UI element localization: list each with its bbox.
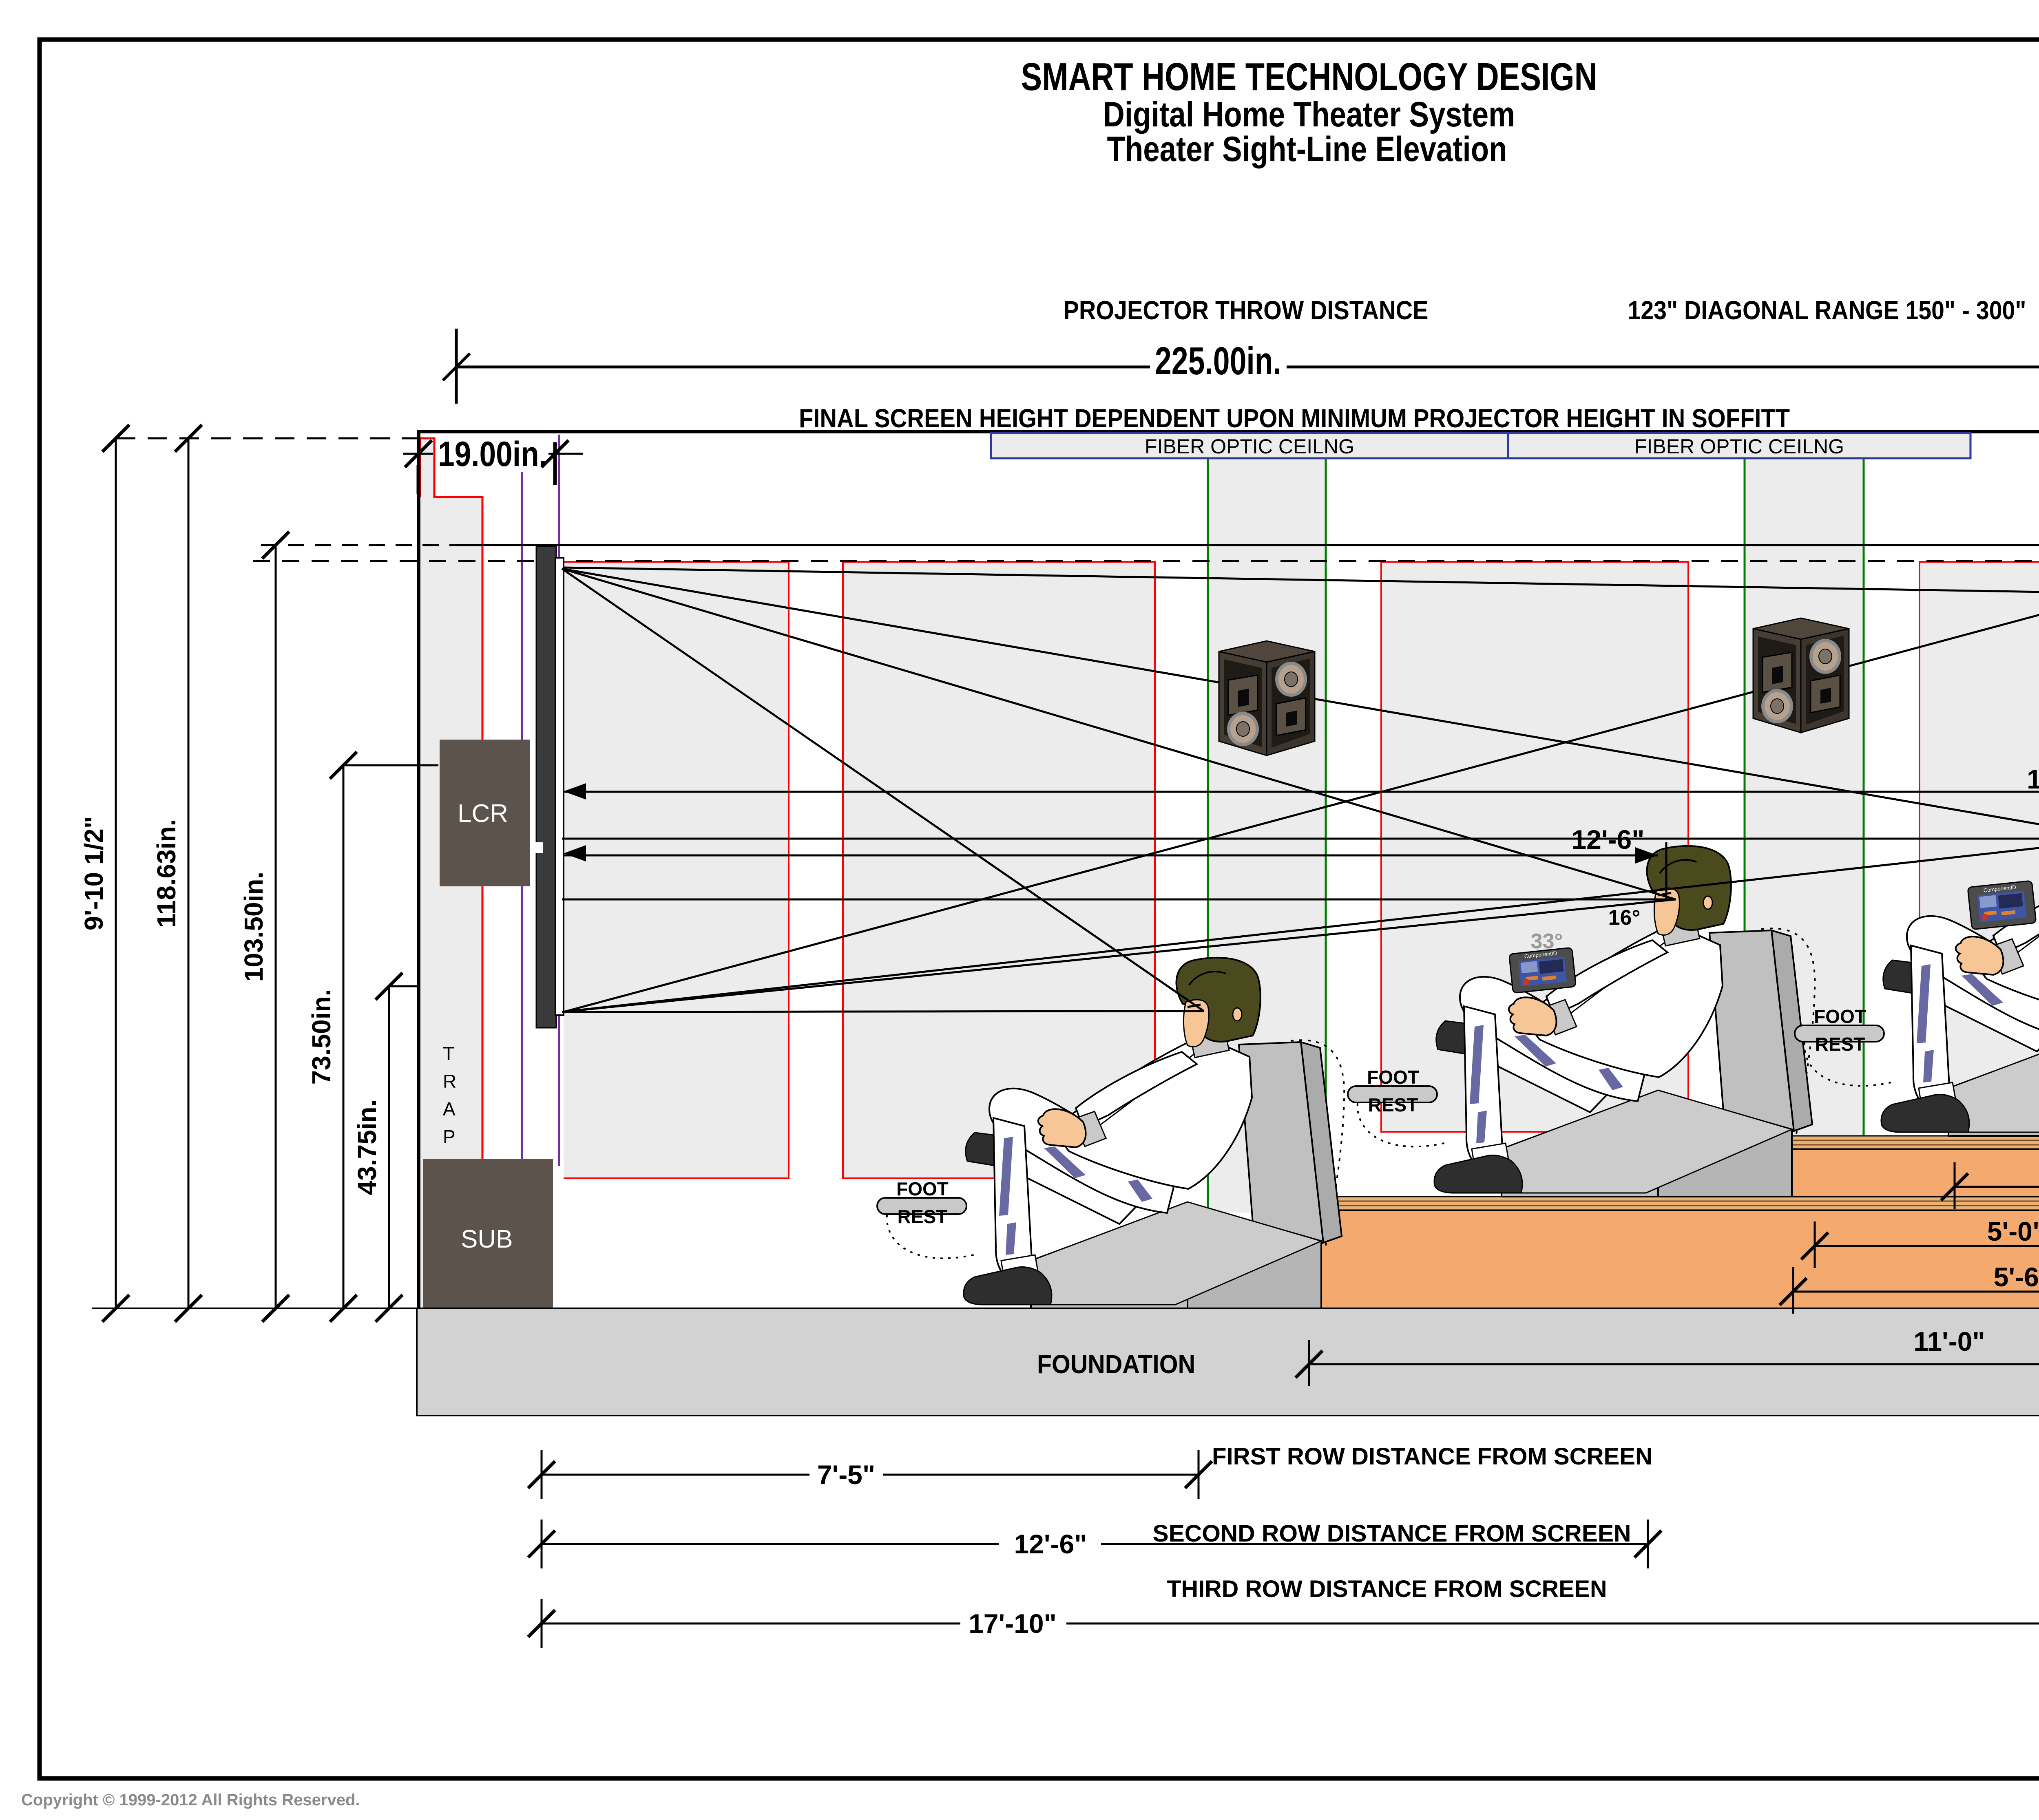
svg-text:FOOT: FOOT (896, 1178, 949, 1199)
svg-text:11'-0": 11'-0" (1913, 1326, 1985, 1356)
svg-text:FIBER OPTIC CEILNG: FIBER OPTIC CEILNG (1634, 435, 1844, 458)
svg-text:5'-6": 5'-6" (1994, 1262, 2039, 1292)
svg-text:SMART HOME TECHNOLOGY DESIGN: SMART HOME TECHNOLOGY DESIGN (1021, 55, 1597, 99)
svg-text:19.00in.: 19.00in. (438, 435, 547, 474)
svg-text:REST: REST (1368, 1094, 1418, 1115)
svg-text:16°: 16° (1608, 906, 1641, 930)
svg-text:225.00in.: 225.00in. (1155, 339, 1281, 383)
svg-text:A: A (443, 1098, 456, 1120)
svg-text:THIRD ROW DISTANCE FROM SCREEN: THIRD ROW DISTANCE FROM SCREEN (1167, 1576, 1607, 1602)
svg-text:SUB: SUB (461, 1225, 513, 1253)
svg-text:T: T (443, 1043, 454, 1064)
svg-text:9'-10 1/2": 9'-10 1/2" (79, 816, 108, 930)
svg-text:118.63in.: 118.63in. (152, 819, 181, 928)
svg-text:12'-6": 12'-6" (1571, 824, 1644, 855)
svg-text:123" DIAGONAL RANGE 150" - 300: 123" DIAGONAL RANGE 150" - 300" (1628, 296, 2026, 325)
svg-text:Copyright © 1999-2012 All Righ: Copyright © 1999-2012 All Rights Reserve… (21, 1791, 360, 1809)
svg-text:43.75in.: 43.75in. (352, 1100, 382, 1195)
svg-text:FIBER OPTIC CEILNG: FIBER OPTIC CEILNG (1145, 435, 1354, 458)
svg-text:103.50in.: 103.50in. (239, 872, 268, 982)
svg-text:P: P (443, 1126, 456, 1147)
svg-text:17'-10": 17'-10" (969, 1608, 1057, 1639)
svg-text:FINAL SCREEN HEIGHT DEPENDENT: FINAL SCREEN HEIGHT DEPENDENT UPON MINIM… (799, 404, 1790, 433)
svg-text:SECOND ROW DISTANCE FROM SCREE: SECOND ROW DISTANCE FROM SCREEN (1153, 1520, 1631, 1547)
svg-text:FOOT: FOOT (1814, 1006, 1866, 1027)
svg-text:REST: REST (898, 1206, 948, 1227)
svg-text:LCR: LCR (458, 800, 508, 828)
svg-text:12'-6": 12'-6" (1014, 1529, 1087, 1559)
svg-text:5'-0": 5'-0" (1987, 1216, 2039, 1246)
svg-text:Theater Sight-Line Elevation: Theater Sight-Line Elevation (1107, 130, 1507, 169)
svg-text:R: R (443, 1071, 456, 1092)
svg-text:73.50in.: 73.50in. (307, 989, 336, 1085)
svg-text:7'-5": 7'-5" (817, 1460, 875, 1490)
svg-text:PROJECTOR THROW DISTANCE: PROJECTOR THROW DISTANCE (1064, 296, 1429, 325)
svg-text:FOUNDATION: FOUNDATION (1037, 1350, 1195, 1379)
svg-text:FOOT: FOOT (1367, 1067, 1419, 1088)
svg-text:REST: REST (1815, 1034, 1865, 1055)
svg-text:Digital Home Theater System: Digital Home Theater System (1103, 95, 1515, 134)
svg-text:17'-10": 17'-10" (2027, 764, 2039, 794)
svg-text:FIRST ROW DISTANCE FROM SCREEN: FIRST ROW DISTANCE FROM SCREEN (1212, 1443, 1652, 1470)
